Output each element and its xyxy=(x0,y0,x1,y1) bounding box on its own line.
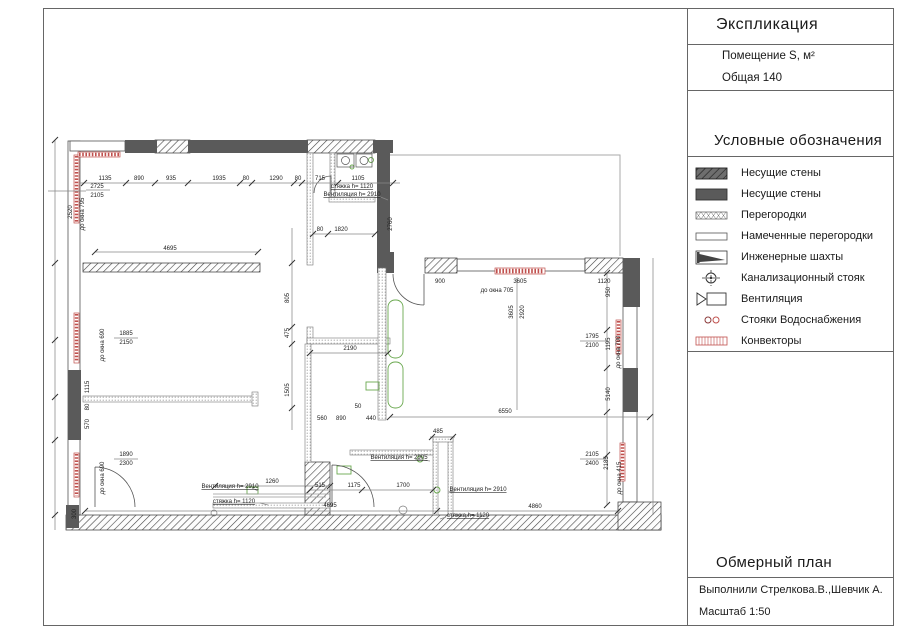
sewer-riser-icon xyxy=(694,269,730,287)
legend-item: Несущие стены xyxy=(694,162,890,183)
total-area-row: Общая 140 xyxy=(722,72,782,84)
legend-item: Канализационный стояк xyxy=(694,267,890,288)
legend-item: Перегородки xyxy=(694,204,890,225)
title-block-divider xyxy=(687,8,688,625)
room-area-header: Помещение S, м² xyxy=(722,50,815,62)
legend-list: Несущие стеныНесущие стеныПерегородкиНам… xyxy=(694,162,890,351)
outline-icon xyxy=(694,227,730,245)
divider-line xyxy=(688,577,893,578)
crosshatch-icon xyxy=(694,206,730,224)
divider-line xyxy=(688,156,893,157)
water-risers-icon xyxy=(694,311,730,329)
legend-item: Несущие стены xyxy=(694,183,890,204)
legend-item: Намеченные перегородки xyxy=(694,225,890,246)
divider-line xyxy=(688,90,893,91)
divider-line xyxy=(688,351,893,352)
explication-title: Экспликация xyxy=(716,16,818,34)
legend-item-label: Несущие стены xyxy=(741,167,821,179)
scale-row: Масштаб 1:50 xyxy=(699,606,771,618)
hatch-dark-icon xyxy=(694,164,730,182)
legend-item-label: Намеченные перегородки xyxy=(741,230,873,242)
convector-icon xyxy=(694,332,730,350)
divider-line xyxy=(688,44,893,45)
legend-item: Инженерные шахты xyxy=(694,246,890,267)
drawing-sheet: 1135890935193580129080715110527252105до … xyxy=(0,0,900,636)
legend-item-label: Перегородки xyxy=(741,209,807,221)
legend-title: Условные обозначения xyxy=(714,132,882,149)
legend-item-label: Инженерные шахты xyxy=(741,251,843,263)
shaft-icon xyxy=(694,248,730,266)
legend-item-label: Канализационный стояк xyxy=(741,272,865,284)
solid-dark-icon xyxy=(694,185,730,203)
legend-item-label: Конвекторы xyxy=(741,335,801,347)
legend-item: Стояки Водоснабжения xyxy=(694,309,890,330)
plan-title: Обмерный план xyxy=(716,554,832,571)
vent-icon xyxy=(694,290,730,308)
legend-item-label: Несущие стены xyxy=(741,188,821,200)
legend-item-label: Вентиляция xyxy=(741,293,803,305)
authors-row: Выполнили Стрелкова.В.,Шевчик А. xyxy=(699,584,883,596)
legend-item-label: Стояки Водоснабжения xyxy=(741,314,861,326)
legend-item: Конвекторы xyxy=(694,330,890,351)
legend-item: Вентиляция xyxy=(694,288,890,309)
